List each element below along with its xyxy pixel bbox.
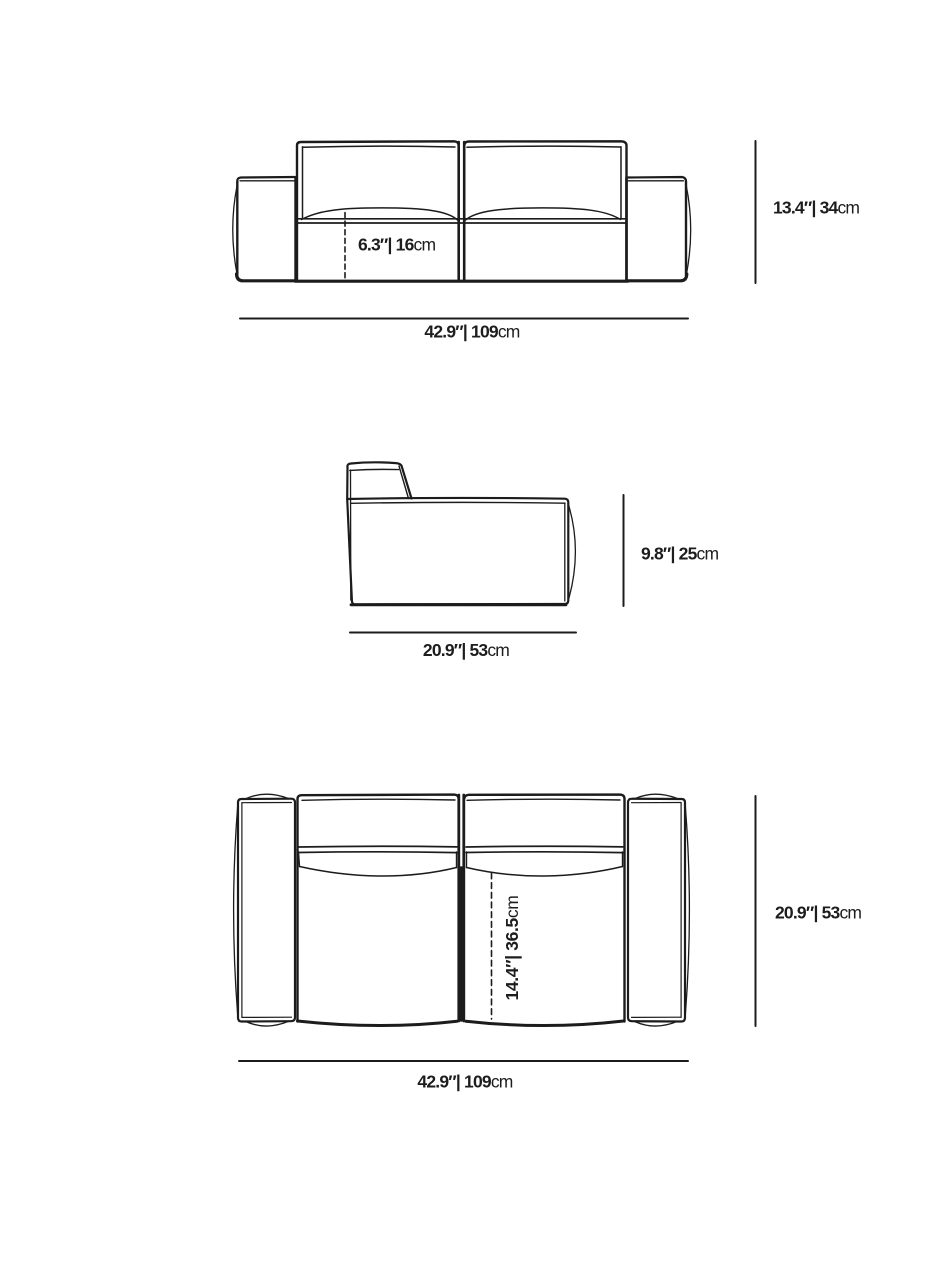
svg-text:6.3″| 16cm: 6.3″| 16cm: [358, 235, 435, 255]
svg-text:14.4″| 36.5cm: 14.4″| 36.5cm: [502, 895, 522, 1000]
svg-text:9.8″| 25cm: 9.8″| 25cm: [641, 544, 718, 564]
svg-text:20.9″| 53cm: 20.9″| 53cm: [423, 640, 509, 660]
svg-text:42.9″| 109cm: 42.9″| 109cm: [417, 1072, 512, 1092]
svg-text:20.9″| 53cm: 20.9″| 53cm: [775, 903, 861, 923]
svg-text:13.4″| 34cm: 13.4″| 34cm: [773, 198, 859, 218]
svg-text:42.9″| 109cm: 42.9″| 109cm: [424, 322, 519, 342]
